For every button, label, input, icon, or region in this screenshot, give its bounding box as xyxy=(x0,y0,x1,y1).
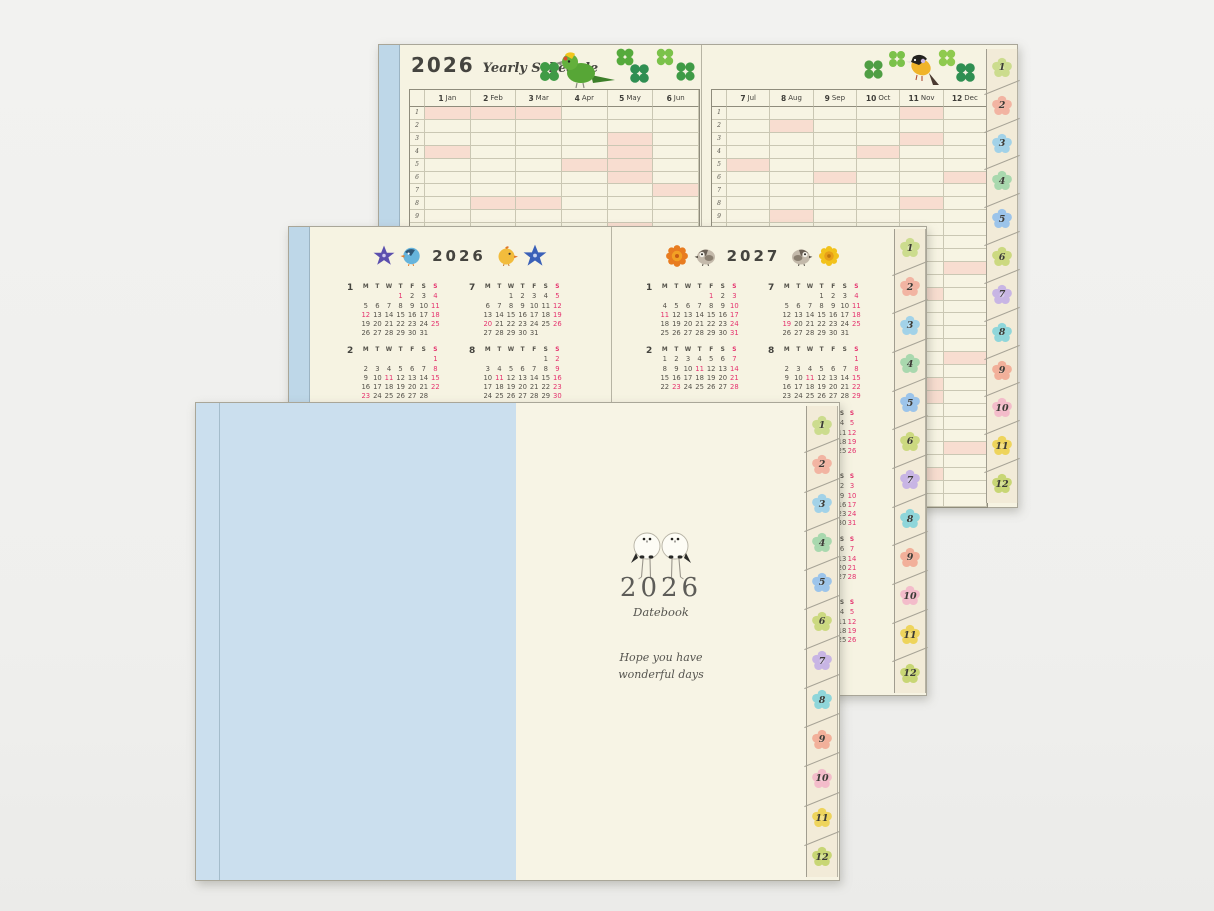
minical-edge-columns: SS45111218192526SS23910161723243031SS671… xyxy=(837,227,877,695)
mini-day: 21 xyxy=(528,383,540,392)
yearly-month-header: 9 Sep xyxy=(814,90,857,107)
tab-number: 9 xyxy=(999,365,1006,376)
mini-day: 10 xyxy=(793,374,805,383)
yearly-day-cell xyxy=(857,159,900,172)
mini-day: 17 xyxy=(793,383,805,392)
mini-day: 3 xyxy=(793,365,805,374)
edge-satsun-group: SS67131420212728 xyxy=(837,536,857,582)
yearly-row-number: 3 xyxy=(410,133,425,146)
yearly-month-header: 4 Apr xyxy=(562,90,608,107)
mini-day: 17 xyxy=(418,311,430,320)
yearly-day-cell xyxy=(471,172,517,185)
mini-day: 24 xyxy=(372,392,384,401)
yearly-day-cell xyxy=(562,133,608,146)
cover-content: 2026 Datebook Hope you have wonderful da… xyxy=(516,527,806,683)
mini-day: 27 xyxy=(406,392,418,401)
tab-number: 6 xyxy=(819,616,826,627)
yearly-day-cell xyxy=(857,197,900,210)
mini-day: 28 xyxy=(418,392,430,401)
index-tabs-yearly: 123456789101112 xyxy=(986,49,1018,503)
mini-day: 24 xyxy=(729,320,741,329)
mini-calendar-month-7: 7MTWTFSS12345678910111213141516171819202… xyxy=(469,283,565,339)
yearly-day-cell xyxy=(562,197,608,210)
edge-sun-day: 26 xyxy=(847,447,857,456)
index-tab-3: 3 xyxy=(895,306,925,345)
yearly-day-cell xyxy=(727,159,770,172)
yearly-day-cell xyxy=(653,210,699,223)
yearly-day-cell xyxy=(471,184,517,197)
mini-weekday: M xyxy=(360,346,372,355)
mini-day: 17 xyxy=(482,383,494,392)
minical-year-right: 2027 xyxy=(727,247,781,265)
mini-day: 24 xyxy=(482,392,494,401)
mini-day: 9 xyxy=(517,302,529,311)
mini-weekday: W xyxy=(505,346,517,355)
mini-weekday: W xyxy=(682,346,694,355)
index-tab-12: 12 xyxy=(987,465,1017,503)
yearly-row-number: 1 xyxy=(712,107,727,120)
tab-number: 9 xyxy=(907,552,914,563)
mini-day: 5 xyxy=(816,365,828,374)
mini-day: 10 xyxy=(418,302,430,311)
yearly-day-cell xyxy=(944,352,987,365)
mini-day: 10 xyxy=(482,374,494,383)
yearly-row-number: 2 xyxy=(410,120,425,133)
mini-day: 26 xyxy=(552,320,564,329)
mini-weekday: T xyxy=(517,283,529,292)
mini-day: 12 xyxy=(705,365,717,374)
yearly-day-cell xyxy=(425,159,471,172)
yearly-day-cell xyxy=(425,184,471,197)
yearly-day-cell xyxy=(770,133,813,146)
yearly-day-cell xyxy=(857,146,900,159)
mini-weekday: T xyxy=(671,283,683,292)
cover-message-line1: Hope you have xyxy=(619,651,702,664)
mini-day: 8 xyxy=(395,302,407,311)
edge-sun-header: S xyxy=(847,410,857,419)
edge-sun-day: 19 xyxy=(847,438,857,447)
yearly-day-cell xyxy=(857,172,900,185)
yearly-day-cell xyxy=(770,159,813,172)
mini-day: 13 xyxy=(793,311,805,320)
mini-day: 9 xyxy=(552,365,564,374)
yearly-day-cell xyxy=(516,120,562,133)
mini-day: 5 xyxy=(705,355,717,364)
yellow-bird-icon xyxy=(495,246,518,266)
tab-number: 3 xyxy=(907,320,914,331)
yearly-day-cell xyxy=(944,391,987,404)
edge-sun-day: 19 xyxy=(847,627,857,636)
yearly-row-number: 7 xyxy=(712,184,727,197)
yearly-day-cell xyxy=(857,120,900,133)
mini-calendar-month-1: 1MTWTFSS12345678910111213141516171819202… xyxy=(646,283,742,339)
mini-weekday: S xyxy=(552,283,564,292)
mini-month-number: 1 xyxy=(347,283,360,292)
mini-day: 7 xyxy=(804,302,816,311)
mini-day: 22 xyxy=(505,320,517,329)
mini-day: 18 xyxy=(494,383,506,392)
mini-day: 25 xyxy=(804,392,816,401)
yearly-day-cell xyxy=(944,236,987,249)
mini-day: 17 xyxy=(729,311,741,320)
mini-day: 3 xyxy=(482,365,494,374)
blue-bird-icon xyxy=(400,246,423,266)
tab-number: 8 xyxy=(819,695,826,706)
mini-day: 14 xyxy=(804,311,816,320)
yearly-row-number: 2 xyxy=(712,120,727,133)
mini-weekday: T xyxy=(372,346,384,355)
mini-day: 18 xyxy=(694,374,706,383)
yearly-day-cell xyxy=(944,275,987,288)
mini-weekday: T xyxy=(494,283,506,292)
mini-month-number: 7 xyxy=(768,283,781,292)
yearly-day-cell xyxy=(425,172,471,185)
edge-sun-day: 12 xyxy=(847,618,857,627)
mini-day: 10 xyxy=(528,302,540,311)
tab-number: 2 xyxy=(907,282,914,293)
mini-day: 12 xyxy=(816,374,828,383)
mini-day: 22 xyxy=(705,320,717,329)
yearly-day-cell xyxy=(944,455,987,468)
mini-weekday: M xyxy=(482,283,494,292)
yearly-day-cell xyxy=(727,146,770,159)
yearly-day-cell xyxy=(944,107,987,120)
mini-day: 20 xyxy=(372,320,384,329)
yearly-day-cell xyxy=(471,210,517,223)
mini-day: 21 xyxy=(418,383,430,392)
yearly-month-header: 6 Jun xyxy=(653,90,699,107)
mini-month-number: 7 xyxy=(469,283,482,292)
mini-day: 9 xyxy=(406,302,418,311)
yearly-day-cell xyxy=(814,210,857,223)
mini-month-number: 2 xyxy=(347,346,360,355)
mini-weekday: S xyxy=(717,283,729,292)
yearly-day-cell xyxy=(608,159,654,172)
index-tabs-cover: 123456789101112 xyxy=(806,406,838,877)
mini-day: 3 xyxy=(372,365,384,374)
yearly-day-cell xyxy=(608,146,654,159)
mini-day: 30 xyxy=(717,329,729,338)
mini-day: 1 xyxy=(395,292,407,301)
yearly-day-cell xyxy=(814,146,857,159)
yearly-day-cell xyxy=(814,120,857,133)
yearly-day-cell xyxy=(814,172,857,185)
mini-day: 4 xyxy=(694,355,706,364)
yearly-day-cell xyxy=(471,197,517,210)
tab-number: 4 xyxy=(819,538,826,549)
tab-number: 12 xyxy=(995,479,1008,490)
mini-day: 12 xyxy=(395,374,407,383)
yearly-day-cell xyxy=(944,301,987,314)
mini-day: 28 xyxy=(694,329,706,338)
yearly-day-cell xyxy=(900,159,943,172)
mini-weekday: F xyxy=(528,346,540,355)
yearly-day-cell xyxy=(425,197,471,210)
mini-day: 18 xyxy=(804,383,816,392)
yearly-day-cell xyxy=(562,120,608,133)
mini-day: 31 xyxy=(418,329,430,338)
yearly-day-cell xyxy=(900,133,943,146)
cover-message-line2: wonderful days xyxy=(618,668,704,681)
mini-day: 19 xyxy=(395,383,407,392)
mini-day: 23 xyxy=(517,320,529,329)
yearly-day-cell xyxy=(653,120,699,133)
mini-day: 21 xyxy=(694,320,706,329)
yearly-day-cell xyxy=(516,107,562,120)
yearly-month-header: 3 Mar xyxy=(516,90,562,107)
tab-number: 11 xyxy=(995,441,1008,452)
mini-day: 24 xyxy=(418,320,430,329)
yearly-day-cell xyxy=(516,133,562,146)
mini-day: 26 xyxy=(360,329,372,338)
mini-day: 2 xyxy=(517,292,529,301)
mini-day: 11 xyxy=(383,374,395,383)
yearly-row-number: 4 xyxy=(410,146,425,159)
mini-day: 2 xyxy=(717,292,729,301)
mini-month-number: 8 xyxy=(469,346,482,355)
mini-day: 1 xyxy=(816,292,828,301)
tab-number: 2 xyxy=(819,459,826,470)
mini-day: 21 xyxy=(804,320,816,329)
mini-day: 30 xyxy=(552,392,564,401)
yearly-day-cell xyxy=(944,159,987,172)
yearly-day-cell xyxy=(857,107,900,120)
yearly-day-cell xyxy=(770,146,813,159)
mini-day: 14 xyxy=(528,374,540,383)
mini-day: 16 xyxy=(360,383,372,392)
mini-day: 25 xyxy=(494,392,506,401)
index-tab-1: 1 xyxy=(987,49,1017,87)
mini-day: 19 xyxy=(505,383,517,392)
mini-day: 4 xyxy=(494,365,506,374)
mini-weekday: S xyxy=(552,346,564,355)
yearly-day-cell xyxy=(814,197,857,210)
mini-day: 3 xyxy=(729,292,741,301)
mini-day: 4 xyxy=(383,365,395,374)
mini-day: 15 xyxy=(705,311,717,320)
yearly-day-cell xyxy=(900,107,943,120)
mini-day: 15 xyxy=(505,311,517,320)
mini-weekday: T xyxy=(816,283,828,292)
edge-sun-header: S xyxy=(847,599,857,608)
yearly-day-cell xyxy=(727,107,770,120)
yearly-day-cell xyxy=(727,172,770,185)
yearly-day-cell xyxy=(608,120,654,133)
yearly-day-cell xyxy=(653,197,699,210)
yearly-day-cell xyxy=(944,417,987,430)
product-photo-canvas: 2026 Yearly Schedule xyxy=(0,0,1214,911)
mini-day: 27 xyxy=(517,392,529,401)
mini-day: 5 xyxy=(552,292,564,301)
yearly-day-cell xyxy=(857,184,900,197)
mini-day: 7 xyxy=(383,302,395,311)
yearly-day-cell xyxy=(944,326,987,339)
mini-day: 11 xyxy=(659,311,671,320)
yearly-day-cell xyxy=(770,197,813,210)
mini-day: 7 xyxy=(418,365,430,374)
yearly-month-header: 1 Jan xyxy=(425,90,471,107)
yearly-day-cell xyxy=(900,172,943,185)
mini-day: 16 xyxy=(517,311,529,320)
index-tab-7: 7 xyxy=(895,461,925,500)
yearly-day-cell xyxy=(944,313,987,326)
mini-day: 23 xyxy=(781,392,793,401)
mini-day: 23 xyxy=(717,320,729,329)
index-tab-7: 7 xyxy=(987,276,1017,314)
mini-day: 22 xyxy=(540,383,552,392)
mini-day: 14 xyxy=(729,365,741,374)
mini-weekday: W xyxy=(383,346,395,355)
mini-weekday: S xyxy=(729,283,741,292)
mini-weekday: M xyxy=(659,283,671,292)
yearly-day-cell xyxy=(814,159,857,172)
yearly-day-cell xyxy=(770,120,813,133)
mini-day: 5 xyxy=(360,302,372,311)
mini-weekday: M xyxy=(781,346,793,355)
yearly-day-cell xyxy=(900,120,943,133)
mini-weekday: T xyxy=(517,346,529,355)
edge-sun-day: 10 xyxy=(847,492,857,501)
tab-number: 8 xyxy=(999,327,1006,338)
mini-weekday: M xyxy=(482,346,494,355)
yearly-day-cell xyxy=(471,146,517,159)
mini-day: 7 xyxy=(494,302,506,311)
mini-month-number: 8 xyxy=(768,346,781,355)
mini-day: 7 xyxy=(528,365,540,374)
mini-calendar-month-2: 2MTWTFSS12345678910111213141516171819202… xyxy=(347,346,443,402)
mini-day: 28 xyxy=(729,383,741,392)
mini-weekday: M xyxy=(360,283,372,292)
yearly-day-cell xyxy=(857,210,900,223)
yearly-day-cell xyxy=(516,172,562,185)
yearly-day-cell xyxy=(516,210,562,223)
minical-2026-decor: 2026 xyxy=(309,232,611,280)
mini-day: 13 xyxy=(372,311,384,320)
mini-day: 24 xyxy=(793,392,805,401)
mini-day: 10 xyxy=(372,374,384,383)
mini-day: 14 xyxy=(418,374,430,383)
mini-calendar-month-1: 1MTWTFSS12345678910111213141516171819202… xyxy=(347,283,443,339)
yearly-day-cell xyxy=(944,430,987,443)
yearly-day-cell xyxy=(653,184,699,197)
mini-day: 26 xyxy=(671,329,683,338)
mini-day: 1 xyxy=(430,355,442,364)
mini-day: 23 xyxy=(406,320,418,329)
yearly-day-cell xyxy=(900,184,943,197)
mini-weekday: T xyxy=(372,283,384,292)
yearly-day-cell xyxy=(944,120,987,133)
mini-weekday: S xyxy=(717,346,729,355)
mini-month-number: 1 xyxy=(646,283,659,292)
mini-day: 8 xyxy=(430,365,442,374)
yearly-day-cell xyxy=(608,107,654,120)
parrot-clover-illustration xyxy=(529,45,709,91)
tab-number: 2 xyxy=(999,100,1006,111)
mini-day: 13 xyxy=(682,311,694,320)
yearly-day-cell xyxy=(944,172,987,185)
tab-number: 3 xyxy=(999,138,1006,149)
yearly-day-cell xyxy=(727,184,770,197)
tab-number: 1 xyxy=(999,62,1006,73)
mini-day: 1 xyxy=(705,292,717,301)
mini-weekday: W xyxy=(804,283,816,292)
mini-day: 6 xyxy=(372,302,384,311)
mini-day: 22 xyxy=(395,320,407,329)
tab-number: 6 xyxy=(907,436,914,447)
tab-number: 5 xyxy=(907,398,914,409)
mini-day: 15 xyxy=(659,374,671,383)
mini-day: 16 xyxy=(781,383,793,392)
tab-number: 5 xyxy=(999,214,1006,225)
tab-number: 3 xyxy=(819,499,826,510)
mini-day: 26 xyxy=(816,392,828,401)
yearly-year: 2026 xyxy=(411,53,475,77)
mini-day: 15 xyxy=(430,374,442,383)
tab-number: 10 xyxy=(903,591,916,602)
yearly-row-number: 3 xyxy=(712,133,727,146)
mini-day: 26 xyxy=(705,383,717,392)
mini-weekday: S xyxy=(540,346,552,355)
mini-day: 12 xyxy=(505,374,517,383)
mini-day: 27 xyxy=(482,329,494,338)
mini-day: 13 xyxy=(717,365,729,374)
mini-day: 11 xyxy=(694,365,706,374)
mini-day: 28 xyxy=(528,392,540,401)
mini-day: 16 xyxy=(717,311,729,320)
mini-day: 15 xyxy=(540,374,552,383)
yearly-row-number: 5 xyxy=(410,159,425,172)
mini-day: 12 xyxy=(360,311,372,320)
mini-day: 10 xyxy=(682,365,694,374)
mini-day: 9 xyxy=(671,365,683,374)
mini-weekday: S xyxy=(418,346,430,355)
yearly-day-cell xyxy=(944,223,987,236)
mini-day: 8 xyxy=(659,365,671,374)
mini-day: 11 xyxy=(494,374,506,383)
yearly-day-cell xyxy=(727,210,770,223)
edge-sun-day: 3 xyxy=(847,482,857,491)
mini-day: 6 xyxy=(517,365,529,374)
yearly-day-cell xyxy=(516,197,562,210)
mini-day: 3 xyxy=(418,292,430,301)
tab-number: 1 xyxy=(819,420,826,431)
yearly-day-cell xyxy=(727,120,770,133)
mini-day: 22 xyxy=(659,383,671,392)
yearly-row-number: 8 xyxy=(410,197,425,210)
mini-day: 2 xyxy=(781,365,793,374)
yearly-day-cell xyxy=(900,210,943,223)
edge-sun-header: S xyxy=(847,536,857,545)
yearly-day-cell xyxy=(944,133,987,146)
yearly-day-cell xyxy=(944,378,987,391)
mini-day: 9 xyxy=(717,302,729,311)
yearly-day-cell xyxy=(425,146,471,159)
index-tab-10: 10 xyxy=(807,759,837,798)
mini-day: 3 xyxy=(682,355,694,364)
cover-message: Hope you have wonderful days xyxy=(618,649,704,683)
yearly-day-cell xyxy=(944,197,987,210)
yearly-month-header: 8 Aug xyxy=(770,90,813,107)
mini-day: 18 xyxy=(430,311,442,320)
mini-weekday: T xyxy=(671,346,683,355)
mini-day: 1 xyxy=(659,355,671,364)
mini-day: 2 xyxy=(552,355,564,364)
mini-day: 5 xyxy=(671,302,683,311)
yearly-month-header: 12 Dec xyxy=(944,90,987,107)
mini-day: 13 xyxy=(482,311,494,320)
edge-sun-day: 12 xyxy=(847,429,857,438)
front-cover-blue xyxy=(196,403,517,880)
